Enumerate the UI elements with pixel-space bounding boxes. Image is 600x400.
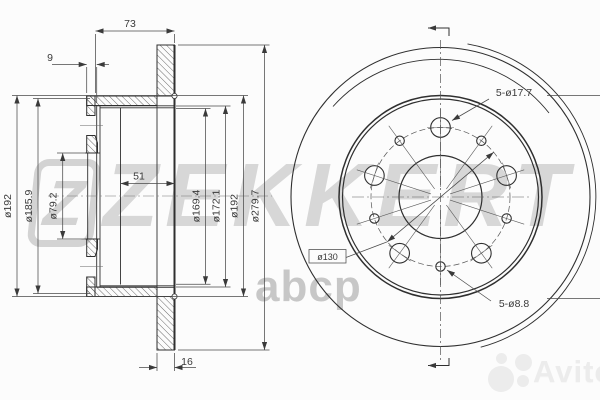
avito-logo-icon (487, 350, 533, 394)
dia-disc-label: ø279.7 (250, 190, 262, 223)
bore-boss-bottom-section (87, 239, 98, 257)
dim-hat-depth: 51 (133, 171, 145, 183)
groove-notch-top (172, 93, 177, 98)
bolt-circle-label: ø130 (317, 252, 338, 262)
dia-outer-right-label: ø192 (229, 194, 241, 218)
dia-bore-label: ø79.2 (48, 192, 60, 219)
friction-ring-bottom-section (157, 297, 175, 351)
front-view (291, 28, 600, 366)
service-holes-label: 5-ø8.8 (499, 298, 530, 310)
brake-disc-technical-drawing: Z ZEKKERT abcp (0, 0, 600, 400)
drawing-svg: 73 9 51 16 ø192 ø185.9 ø79.2 ø169.4 ø172… (0, 0, 600, 400)
dia-hat-label: ø185.9 (23, 190, 35, 223)
dim-width-total: 73 (124, 18, 136, 30)
right-edge-extension-lines (547, 96, 600, 299)
friction-ring-top-section (157, 45, 175, 96)
dia-inner2-label: ø172.1 (211, 190, 223, 223)
dia-inner1-label: ø169.4 (191, 190, 203, 223)
avito-watermark: Avito (487, 350, 600, 394)
bolt-circle-dimension (309, 152, 494, 263)
dim-disc-thickness: 16 (181, 356, 193, 368)
flange-top-section (87, 96, 95, 116)
dia-outer-left-label: ø192 (2, 194, 14, 218)
bolt-holes-label: 5-ø17.7 (496, 87, 532, 99)
hat-wall-top-section (87, 96, 157, 106)
avito-watermark-text: Avito (533, 354, 600, 390)
bore-boss-top-section (87, 136, 98, 154)
hat-wall-bottom-section (87, 287, 157, 297)
dim-flange-thickness: 9 (47, 52, 53, 64)
hole-callout-leaders (447, 99, 491, 301)
